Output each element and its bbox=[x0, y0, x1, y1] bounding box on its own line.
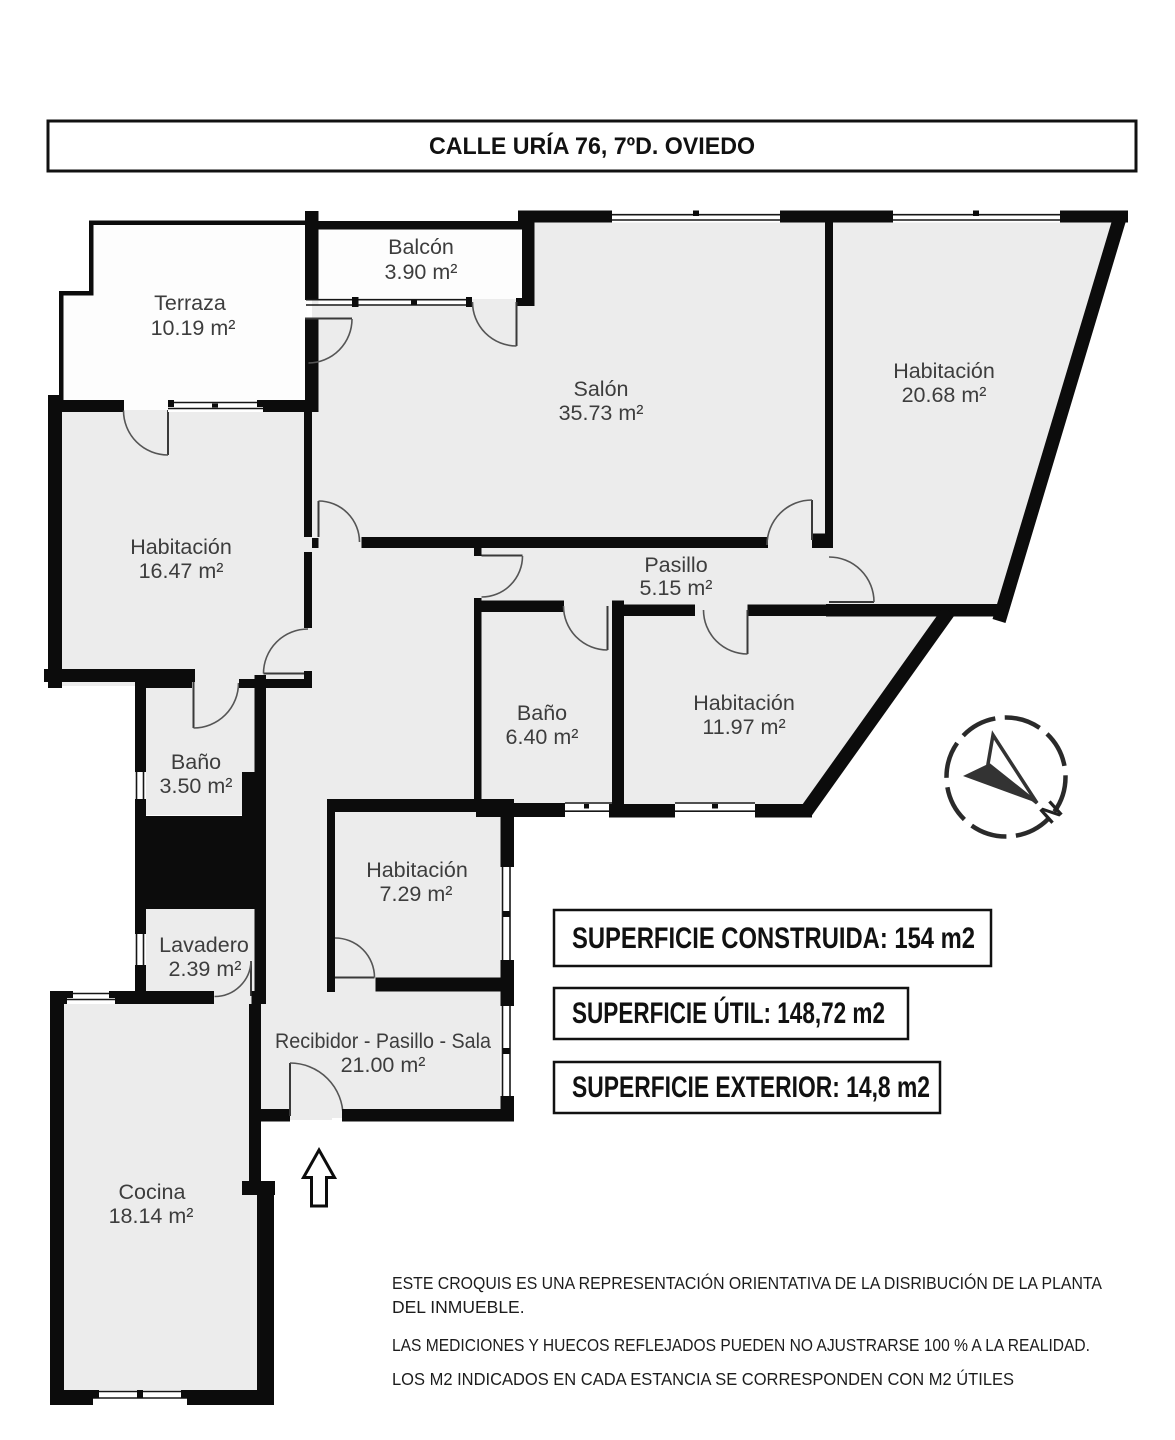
svg-text:CALLE URÍA 76, 7ºD. OVIEDO: CALLE URÍA 76, 7ºD. OVIEDO bbox=[429, 132, 755, 160]
svg-text:Cocina: Cocina bbox=[119, 1180, 186, 1204]
svg-text:Habitación: Habitación bbox=[893, 359, 995, 383]
svg-text:Salón: Salón bbox=[574, 377, 629, 401]
svg-text:SUPERFICIE EXTERIOR: 14,8 m2: SUPERFICIE EXTERIOR: 14,8 m2 bbox=[572, 1071, 930, 1104]
svg-text:7.29 m²: 7.29 m² bbox=[380, 882, 453, 906]
svg-text:20.68 m²: 20.68 m² bbox=[902, 383, 987, 407]
svg-text:35.73 m²: 35.73 m² bbox=[559, 401, 644, 425]
svg-text:Pasillo: Pasillo bbox=[644, 553, 707, 577]
svg-text:Baño: Baño bbox=[171, 750, 221, 774]
svg-text:Terraza: Terraza bbox=[154, 291, 226, 315]
svg-text:LAS MEDICIONES Y HUECOS REFLEJ: LAS MEDICIONES Y HUECOS REFLEJADOS PUEDE… bbox=[392, 1335, 1090, 1355]
svg-text:11.97 m²: 11.97 m² bbox=[702, 715, 785, 739]
svg-text:DEL INMUEBLE.: DEL INMUEBLE. bbox=[392, 1297, 525, 1317]
svg-text:6.40 m²: 6.40 m² bbox=[506, 725, 579, 749]
svg-text:Baño: Baño bbox=[517, 701, 567, 725]
svg-text:21.00 m²: 21.00 m² bbox=[341, 1053, 426, 1077]
svg-text:Habitación: Habitación bbox=[366, 858, 468, 882]
svg-text:5.15 m²: 5.15 m² bbox=[640, 576, 713, 600]
svg-text:Habitación: Habitación bbox=[130, 535, 232, 559]
svg-text:SUPERFICIE ÚTIL: 148,72 m2: SUPERFICIE ÚTIL: 148,72 m2 bbox=[572, 996, 885, 1030]
svg-text:3.50 m²: 3.50 m² bbox=[160, 774, 233, 798]
svg-text:2.39 m²: 2.39 m² bbox=[169, 957, 242, 981]
svg-text:LOS M2 INDICADOS EN CADA ESTAN: LOS M2 INDICADOS EN CADA ESTANCIA SE COR… bbox=[392, 1368, 1014, 1389]
svg-text:3.90 m²: 3.90 m² bbox=[385, 260, 458, 284]
svg-text:18.14 m²: 18.14 m² bbox=[109, 1204, 194, 1228]
svg-text:16.47 m²: 16.47 m² bbox=[139, 559, 224, 583]
svg-text:Recibidor - Pasillo - Sala: Recibidor - Pasillo - Sala bbox=[275, 1029, 491, 1053]
svg-text:ESTE CROQUIS ES UNA REPRESENTA: ESTE CROQUIS ES UNA REPRESENTACIÓN ORIEN… bbox=[392, 1272, 1102, 1293]
svg-text:10.19 m²: 10.19 m² bbox=[151, 316, 236, 340]
svg-text:Balcón: Balcón bbox=[388, 235, 454, 259]
svg-text:SUPERFICIE CONSTRUIDA: 154 m2: SUPERFICIE CONSTRUIDA: 154 m2 bbox=[572, 922, 975, 955]
svg-text:Lavadero: Lavadero bbox=[159, 933, 249, 957]
svg-text:Habitación: Habitación bbox=[693, 691, 795, 715]
